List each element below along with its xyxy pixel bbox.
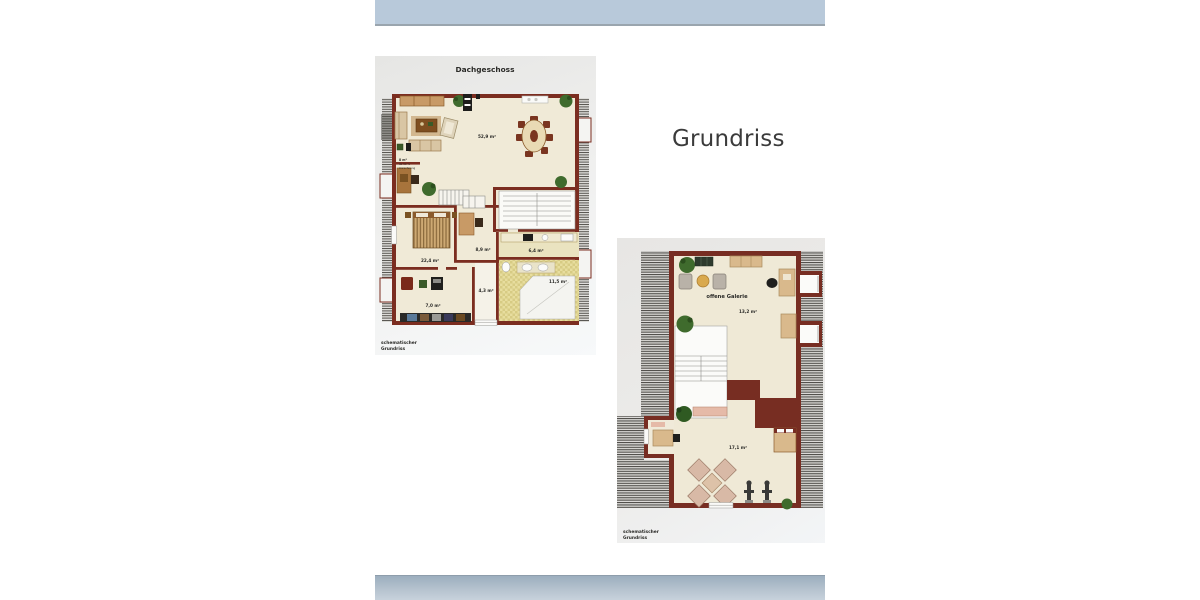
stair-void [675, 326, 727, 418]
bathroom [499, 260, 579, 321]
stairwell [499, 191, 575, 229]
label-kitchen: 6,4 m² [528, 248, 543, 253]
label-study: 8,9 m² [475, 247, 490, 252]
bottom-decor-band [375, 575, 825, 600]
plan1-caption: schematischer Grundriss [381, 340, 418, 352]
plan1-title: Dachgeschoss [456, 65, 516, 74]
floorplan-dachgeschoss-drawing: Dachgeschoss [375, 56, 596, 355]
label-room-area: 17,1 m² [729, 445, 747, 450]
label-storage: 7,0 m² [425, 303, 440, 308]
page-title: Grundriss [672, 126, 785, 152]
svg-text:Grundriss: Grundriss [623, 535, 647, 541]
floorplan-dachgeschoss-image: Dachgeschoss [375, 56, 596, 355]
label-hall: 4,3 m² [478, 288, 493, 293]
bed [774, 428, 796, 452]
plan2-caption: schematischer Grundriss [623, 529, 660, 541]
label-gallery-area: 13,2 m² [739, 309, 757, 314]
label-living: 52,9 m² [478, 134, 496, 139]
roof-hatch-left [380, 98, 393, 322]
svg-text:Anrechnung: Anrechnung [399, 166, 416, 170]
floorplan-galerie-image: offene Galerie 13,2 m² 17,1 m² schematis… [617, 238, 825, 543]
svg-text:Grundriss: Grundriss [381, 346, 405, 352]
label-bath: 11,5 m² [549, 279, 567, 284]
top-decor-band [375, 0, 825, 26]
wardrobe-strip [400, 313, 471, 322]
roof-hatch-right [578, 98, 591, 322]
label-bedroom: 22,4 m² [421, 258, 439, 263]
label-gallery: offene Galerie [706, 294, 748, 300]
kitchen [499, 232, 579, 257]
page: Grundriss Dachgeschoss [0, 0, 1200, 600]
svg-text:schematischer: schematischer [623, 529, 660, 535]
svg-text:schematischer: schematischer [381, 340, 418, 346]
bedroom-furniture [405, 212, 457, 248]
floorplan-galerie-drawing: offene Galerie 13,2 m² 17,1 m² schematis… [617, 238, 825, 543]
